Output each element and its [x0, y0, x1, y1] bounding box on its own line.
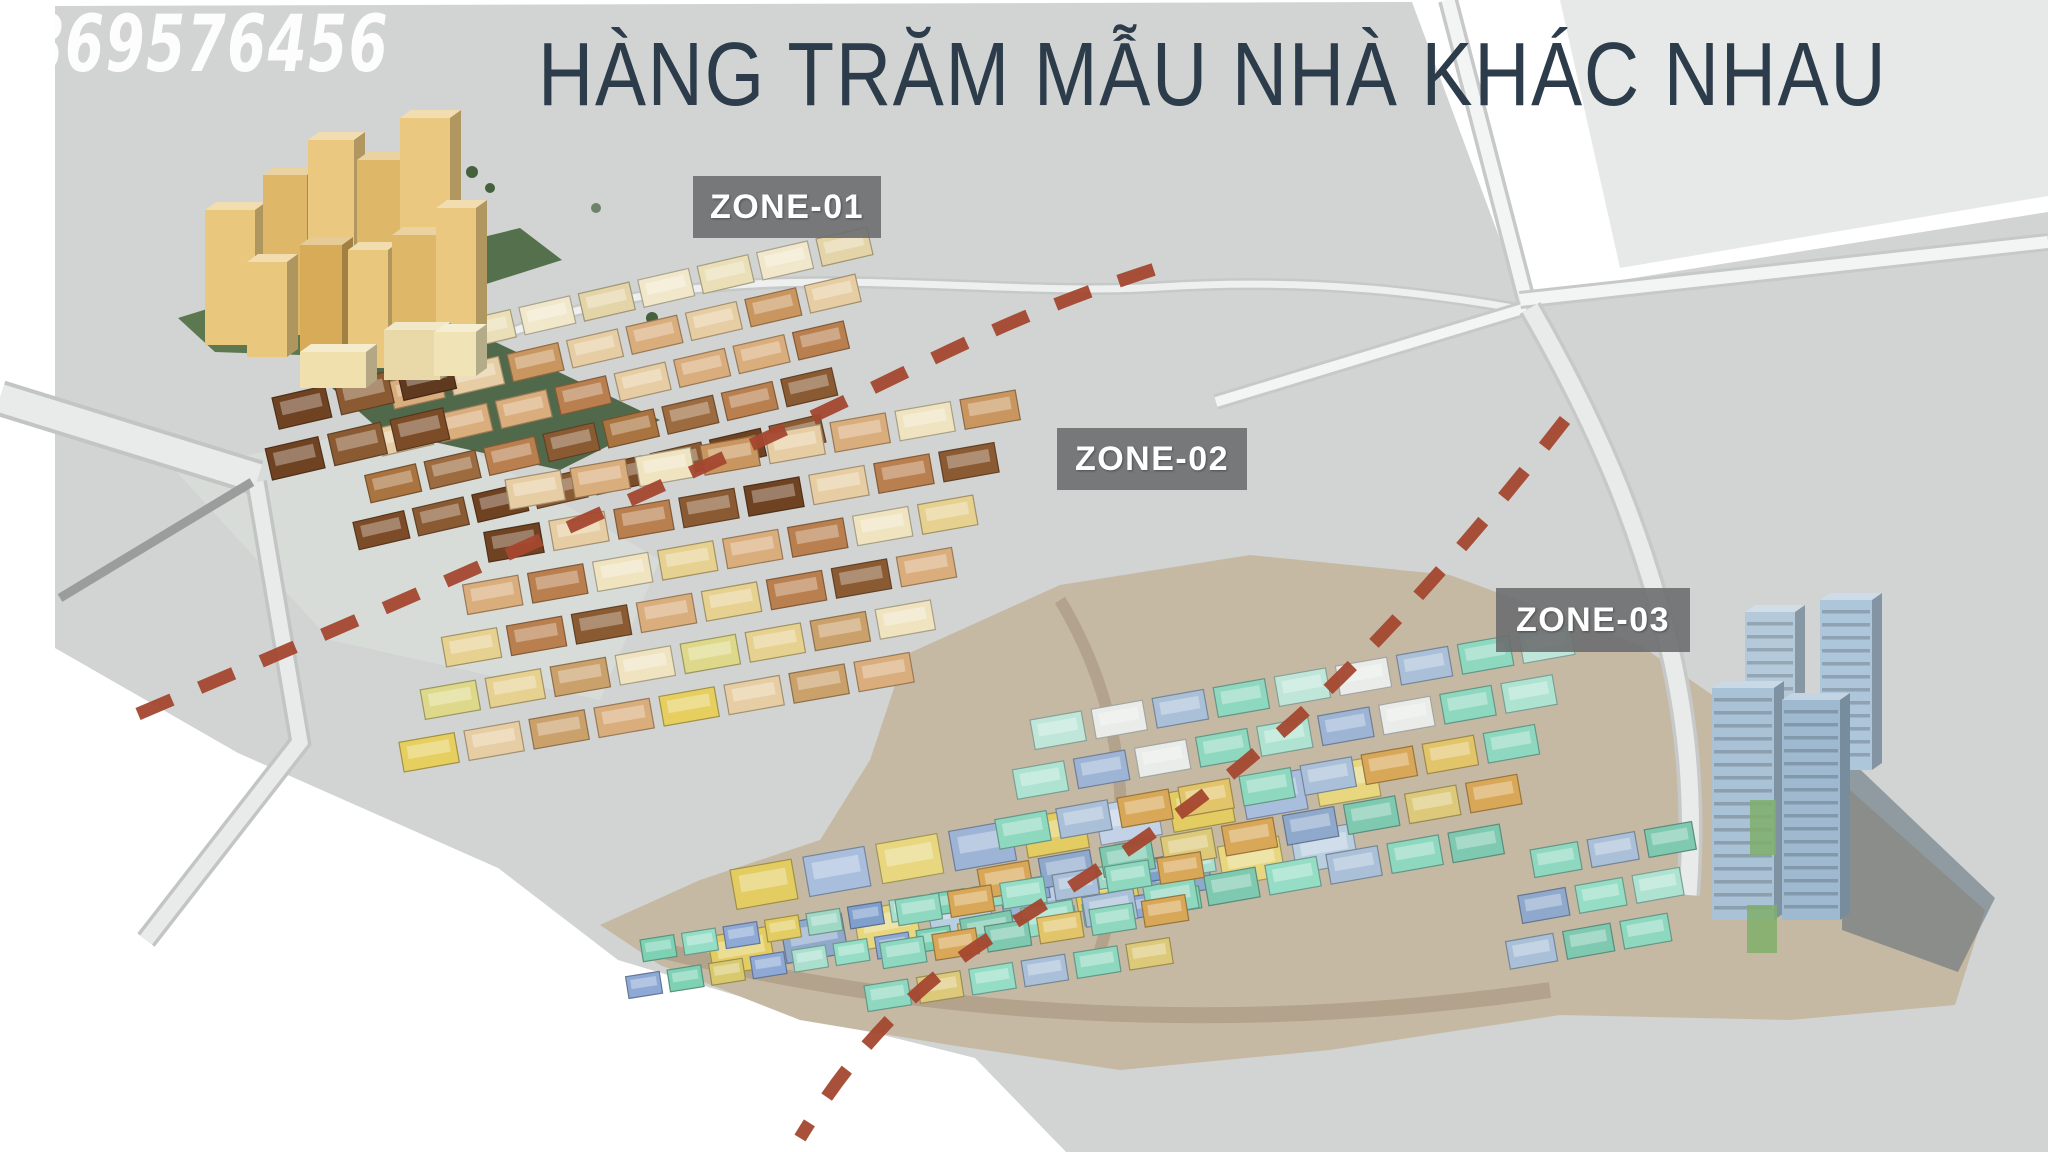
phone-watermark: 0869576456 [0, 6, 389, 84]
page-title: HÀNG TRĂM MẪU NHÀ KHÁC NHAU [538, 30, 1887, 120]
tree [466, 166, 478, 178]
zone-01-label: ZONE-01 [693, 176, 881, 238]
tree [485, 183, 495, 193]
zone-03-label: ZONE-03 [1496, 588, 1690, 652]
tree [591, 203, 601, 213]
masterplan-render: 0869576456 HÀNG TRĂM MẪU NHÀ KHÁC NHAU Z… [0, 0, 2048, 1152]
scene-svg [0, 0, 2048, 1152]
zone-02-label: ZONE-02 [1057, 428, 1247, 490]
